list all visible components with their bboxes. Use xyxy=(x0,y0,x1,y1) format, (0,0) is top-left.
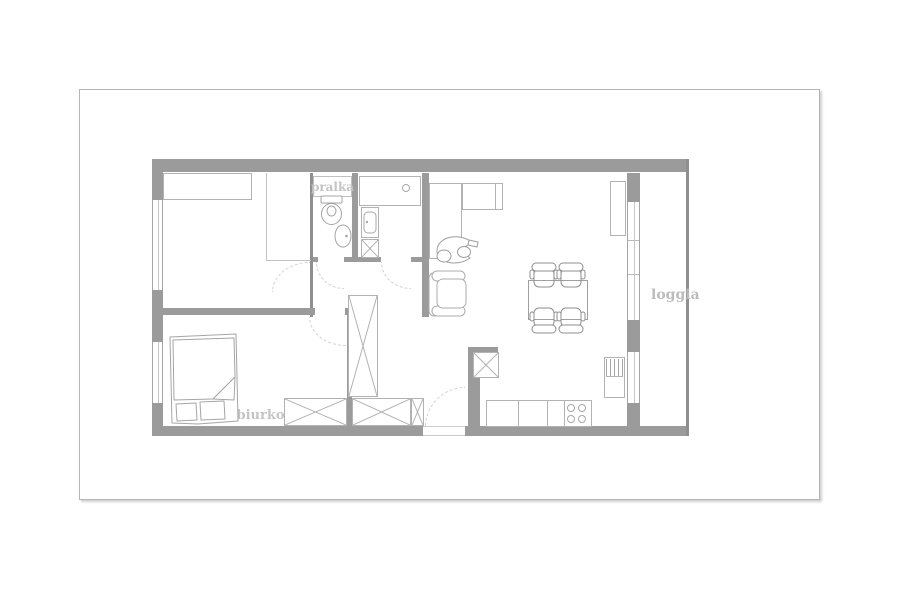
hob-burner xyxy=(578,404,586,412)
radiator-hatch xyxy=(606,359,623,377)
workstation-desk-top xyxy=(462,183,503,210)
wall-loggia-divider-b xyxy=(627,320,640,352)
wall-loggia-divider-a xyxy=(627,173,640,202)
hall-console-unit xyxy=(352,398,411,426)
window-loggia-1 xyxy=(627,202,640,320)
wall-bottom-b xyxy=(465,426,688,436)
wardrobe-top-room xyxy=(163,173,252,200)
window-mullion xyxy=(628,274,639,275)
desk-divider xyxy=(495,184,496,209)
wall-loggia-divider-c xyxy=(627,403,640,427)
bathroom-cabinet xyxy=(361,239,379,258)
wall-corridor-top-c xyxy=(411,257,422,262)
wall-kitchen-left-thick xyxy=(468,378,480,427)
bedroom-desk-unit xyxy=(284,398,347,426)
window-left-2 xyxy=(152,342,163,403)
desk-label: biurko xyxy=(237,408,285,423)
wall-bath-right xyxy=(422,173,429,317)
washing-machine-label: pralka xyxy=(311,180,354,194)
washing-machine: pralka xyxy=(313,176,352,197)
bathtub xyxy=(359,176,421,206)
kitchen-counter xyxy=(486,400,592,427)
wall-left-b xyxy=(152,290,163,342)
drawing-sheet xyxy=(79,89,820,500)
floorplan-canvas: pralka biurko log xyxy=(0,0,900,595)
counter-divider xyxy=(564,401,565,426)
window-mullion xyxy=(628,240,639,241)
hob-burner xyxy=(578,415,586,423)
tv-sideboard xyxy=(610,181,626,236)
hall-console-end-unit xyxy=(411,398,424,426)
workstation-desk-left xyxy=(429,183,462,259)
wall-rooms-divider-a xyxy=(152,308,315,315)
closet-niche-outline xyxy=(266,173,311,261)
hob-burner xyxy=(567,415,575,423)
entry-door-threshold xyxy=(423,426,465,436)
dining-table xyxy=(528,280,588,320)
fridge xyxy=(473,352,499,378)
hob-burner xyxy=(567,404,575,412)
bathroom-sink-counter xyxy=(361,207,379,238)
wall-left-a xyxy=(152,159,163,200)
loggia-label: loggia xyxy=(651,286,700,304)
wall-top xyxy=(152,159,688,172)
desk-label-box: biurko xyxy=(237,406,284,425)
kitchen-tall-unit xyxy=(604,357,625,398)
wall-bottom-a xyxy=(152,426,423,436)
window-loggia-2 xyxy=(627,352,640,403)
counter-divider xyxy=(547,401,548,426)
counter-divider xyxy=(518,401,519,426)
hall-tall-wardrobe xyxy=(348,295,378,397)
window-left-1 xyxy=(152,200,163,290)
